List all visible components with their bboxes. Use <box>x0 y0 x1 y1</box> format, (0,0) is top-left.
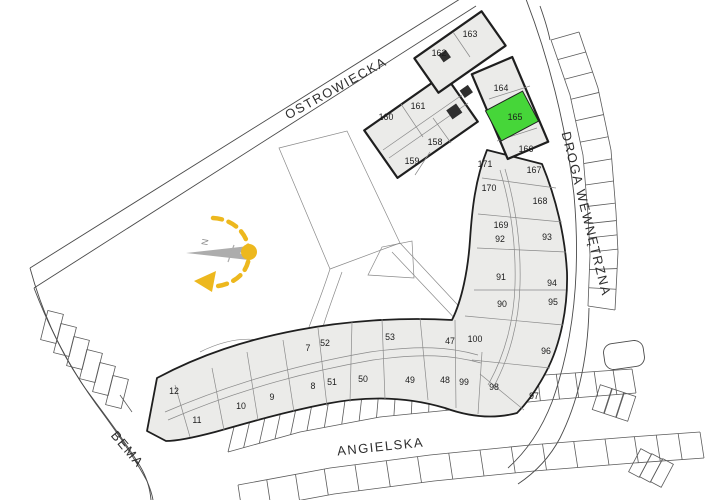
unit-label-99[interactable]: 99 <box>459 377 469 387</box>
compass-icon: N <box>186 238 249 262</box>
street-label-2: ANGIELSKA <box>336 435 424 459</box>
unit-label-161[interactable]: 161 <box>411 101 426 111</box>
sun-dot <box>241 244 257 260</box>
unit-label-47[interactable]: 47 <box>445 336 455 346</box>
parking-stall-droga-south <box>640 454 663 483</box>
unit-label-158[interactable]: 158 <box>428 137 443 147</box>
unit-label-169[interactable]: 169 <box>494 220 509 230</box>
north-label: N <box>200 238 211 246</box>
parking-strip-angielska-lower <box>238 432 704 500</box>
unit-label-98[interactable]: 98 <box>489 382 499 392</box>
unit-label-168[interactable]: 168 <box>533 196 548 206</box>
unit-label-97[interactable]: 97 <box>529 391 539 401</box>
unit-label-164[interactable]: 164 <box>494 83 509 93</box>
unit-label-162[interactable]: 162 <box>432 48 447 58</box>
unit-label-11[interactable]: 11 <box>192 415 201 425</box>
unit-label-12[interactable]: 12 <box>169 386 179 396</box>
driveway-apron <box>602 339 645 370</box>
unit-label-166[interactable]: 166 <box>519 144 534 154</box>
unit-label-48[interactable]: 48 <box>440 375 450 385</box>
north-arrow-icon <box>186 246 249 260</box>
unit-label-100[interactable]: 100 <box>468 334 483 344</box>
unit-label-93[interactable]: 93 <box>542 232 552 242</box>
unit-label-90[interactable]: 90 <box>497 299 507 309</box>
unit-label-92[interactable]: 92 <box>495 234 505 244</box>
unit-label-163[interactable]: 163 <box>463 29 478 39</box>
unit-label-9[interactable]: 9 <box>270 392 275 402</box>
parking-stall-bema <box>106 376 129 409</box>
unit-label-160[interactable]: 160 <box>379 112 394 122</box>
building-lower-block <box>147 150 567 441</box>
unit-label-94[interactable]: 94 <box>547 278 557 288</box>
unit-label-95[interactable]: 95 <box>548 297 558 307</box>
site-plan-page: 1631621641611601651581661591711671701681… <box>0 0 707 500</box>
unit-label-8[interactable]: 8 <box>311 381 316 391</box>
street-droga-lead <box>540 6 550 40</box>
sun-arrowhead <box>194 271 216 292</box>
unit-label-52[interactable]: 52 <box>320 338 330 348</box>
unit-label-170[interactable]: 170 <box>482 183 497 193</box>
unit-label-53[interactable]: 53 <box>385 332 395 342</box>
street-label-3: BEMA <box>108 428 147 470</box>
site-plan-map: 1631621641611601651581661591711671701681… <box>0 0 707 500</box>
unit-label-96[interactable]: 96 <box>541 346 551 356</box>
unit-label-51[interactable]: 51 <box>327 377 337 387</box>
building-top-block <box>364 74 478 178</box>
parking-stall-droga-south <box>651 459 674 488</box>
unit-label-165[interactable]: 165 <box>508 112 523 122</box>
unit-label-10[interactable]: 10 <box>236 401 246 411</box>
unit-label-159[interactable]: 159 <box>405 156 420 166</box>
street-label-0: OSTROWIECKA <box>282 54 389 122</box>
unit-label-171[interactable]: 171 <box>478 159 493 169</box>
unit-label-7[interactable]: 7 <box>306 343 311 353</box>
bema-connector-line <box>120 395 132 412</box>
stair-core <box>460 85 473 98</box>
unit-label-49[interactable]: 49 <box>405 375 415 385</box>
courtyard-walkway <box>308 269 342 330</box>
unit-label-167[interactable]: 167 <box>527 165 542 175</box>
unit-label-91[interactable]: 91 <box>496 272 506 282</box>
unit-label-50[interactable]: 50 <box>358 374 368 384</box>
